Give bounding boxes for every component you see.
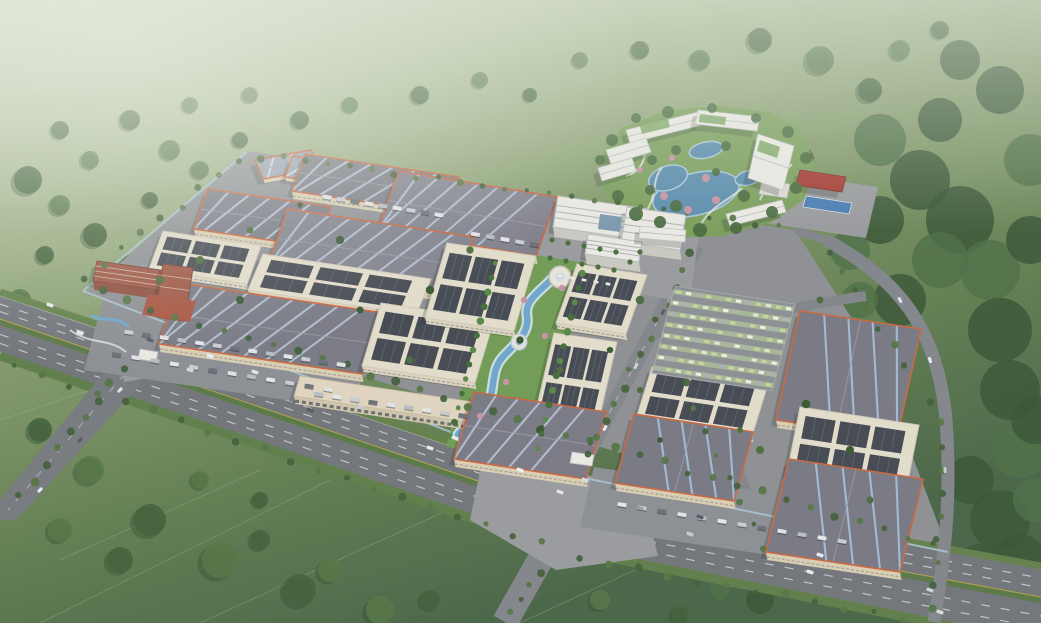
aerial-site-rendering-canvas (0, 0, 1041, 623)
atmosphere (0, 0, 1041, 623)
aerial-rendering-industrial-park (0, 0, 1041, 623)
corner-haze (0, 0, 1041, 623)
